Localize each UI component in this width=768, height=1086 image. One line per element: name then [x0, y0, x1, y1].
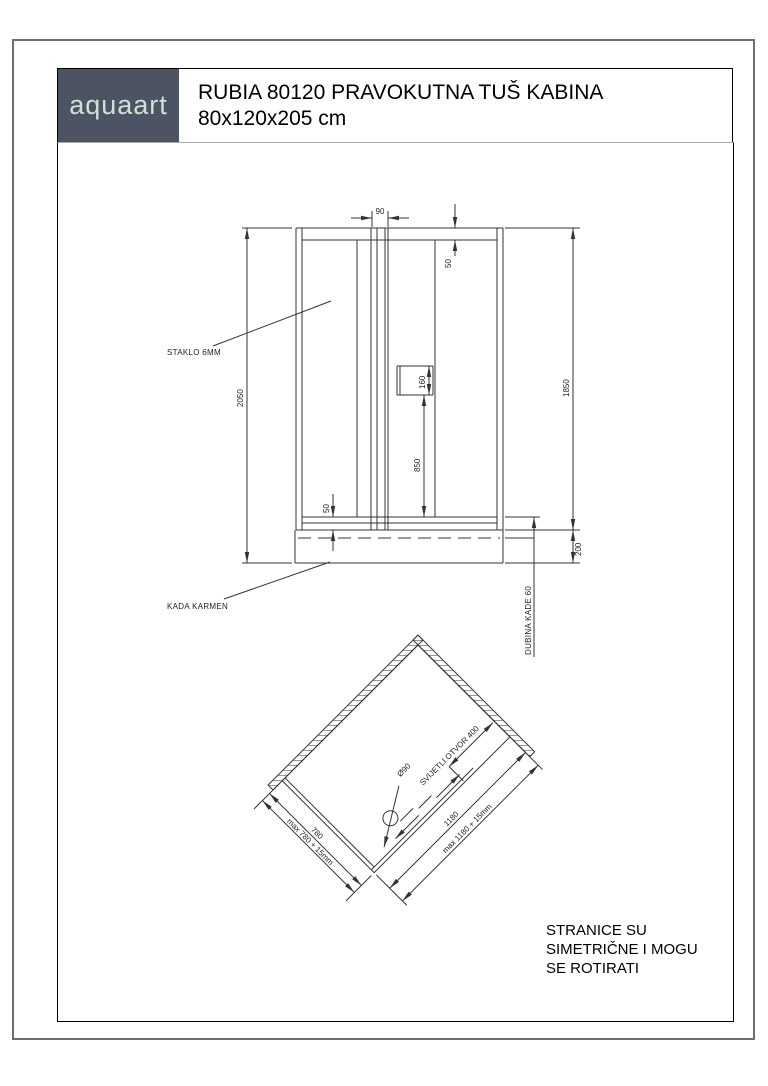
dim-90-label: 90 — [376, 207, 385, 216]
note-line-1: STRANICE SU — [546, 921, 746, 940]
dim-2050-label: 2050 — [236, 389, 245, 407]
dim-780-max-label: max 780 + 15mm — [285, 817, 335, 867]
dim-850-label: 850 — [413, 458, 422, 472]
dim-1180-max-label: max 1180 + 15mm — [441, 802, 494, 855]
plan-view: 780 max 780 + 15mm 1180 max 1180 + 15mm … — [249, 635, 547, 933]
title-block: aquaart RUBIA 80120 PRAVOKUTNA TUŠ KABIN… — [57, 68, 733, 143]
dim-1180 — [376, 739, 542, 905]
handle-bracket — [397, 366, 433, 395]
dim-50-top-label: 50 — [444, 259, 453, 268]
note-line-3: SE ROTIRATI — [546, 959, 746, 978]
symmetry-note: STRANICE SU SIMETRIČNE I MOGU SE ROTIRAT… — [546, 921, 746, 978]
product-dimensions: 80x120x205 cm — [198, 106, 732, 132]
drawing-title: RUBIA 80120 PRAVOKUTNA TUŠ KABINA 80x120… — [179, 69, 732, 142]
staklo-leader — [213, 301, 331, 346]
product-name: RUBIA 80120 PRAVOKUTNA TUŠ KABINA — [198, 80, 732, 106]
technical-drawing: 90 50 2050 1850 200 160 850 50 STAKLO 6M… — [58, 143, 733, 1021]
dim-160-label: 160 — [418, 375, 427, 389]
dim-dubina — [505, 517, 540, 657]
kada-label: KADA KARMEN — [167, 602, 228, 611]
dim-2050 — [242, 228, 292, 563]
dim-1850-label: 1850 — [562, 379, 571, 397]
dim-drain-label: Ø90 — [395, 761, 412, 778]
drawing-area: 90 50 2050 1850 200 160 850 50 STAKLO 6M… — [57, 142, 734, 1022]
drain — [361, 786, 423, 848]
staklo-label: STAKLO 6MM — [167, 348, 221, 357]
dim-200-label: 200 — [574, 542, 583, 556]
shower-tray — [295, 530, 503, 563]
dim-otvor-label: SVIJETLI OTVOR 400 — [418, 724, 481, 787]
kada-leader — [224, 562, 330, 599]
dubina-label: DUBINA KADE 60 — [524, 586, 533, 655]
dim-50-bottom-label: 50 — [322, 504, 331, 513]
note-line-2: SIMETRIČNE I MOGU — [546, 940, 746, 959]
dim-1180-label: 1180 — [442, 809, 461, 828]
brand-logo: aquaart — [58, 69, 179, 142]
brand-logo-text: aquaart — [69, 90, 168, 121]
